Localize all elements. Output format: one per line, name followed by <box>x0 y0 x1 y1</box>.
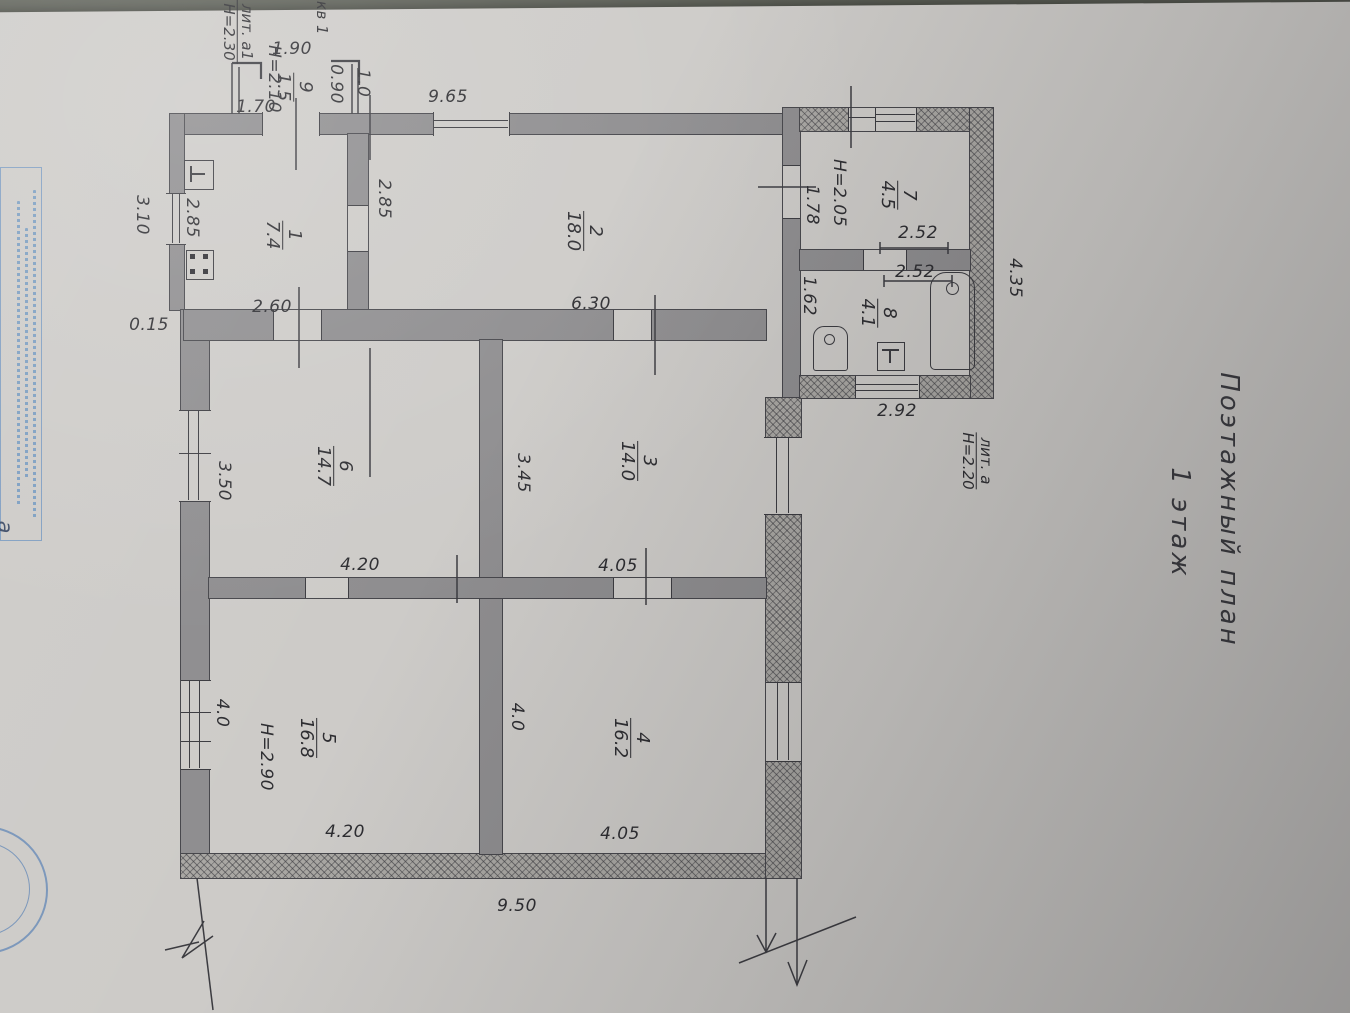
dim-room5-height: Н=2.90 <box>256 723 276 791</box>
dim-top-wall: 9.65 <box>428 87 468 107</box>
dim-annex-width: 4.35 <box>1005 258 1025 298</box>
stamp-text-row <box>17 201 20 506</box>
room-7-number: 7 <box>898 181 920 210</box>
photographed-floor-plan: 9.65 1.90 1.70 0.15 2.60 6.30 4.20 4.05 … <box>0 0 1350 1013</box>
page-title: Поэтажный план <box>1214 372 1244 647</box>
room-3-number: 3 <box>638 441 660 481</box>
dim-porch-c: 0.90 <box>326 64 346 104</box>
room-7-label: 7 4.5 <box>877 181 919 210</box>
room-9-label: 9 1.5 <box>273 73 315 102</box>
apartment-label: кв 1 <box>313 1 331 35</box>
litera-a1-name: лит. а1 <box>237 0 255 64</box>
stamp-text-row <box>25 228 28 481</box>
dim-room1-width: 2.85 <box>182 198 202 238</box>
litera-a-label: лит. а Н=2.20 <box>958 432 994 489</box>
room-2-label: 2 18.0 <box>563 211 605 251</box>
dim-porch-d: 1.0 <box>353 69 373 98</box>
room-9-area: 1.5 <box>273 73 294 102</box>
dim-room5-length: 4.20 <box>325 822 365 842</box>
room-1-area: 7.4 <box>262 221 283 250</box>
pen-mark: а <box>0 521 17 534</box>
dim-room7-depth: 1.78 <box>802 185 822 225</box>
room-6-number: 6 <box>334 446 356 486</box>
room-4-number: 4 <box>631 718 653 758</box>
litera-a-name: лит. а <box>976 432 994 489</box>
room-3-area: 14.0 <box>617 441 638 481</box>
room-1-number: 1 <box>283 221 305 250</box>
dim-room8-depth: 1.62 <box>799 276 819 316</box>
dim-room3-width: 3.45 <box>513 453 533 493</box>
dim-room5-width: 4.0 <box>212 699 232 728</box>
room-3-label: 3 14.0 <box>617 441 659 481</box>
room-6-label: 6 14.7 <box>313 446 355 486</box>
litera-a-height: Н=2.20 <box>958 432 975 489</box>
room-5-area: 16.8 <box>296 718 317 758</box>
room-8-number: 8 <box>878 299 900 328</box>
dim-room3-length: 4.05 <box>598 556 638 576</box>
dim-wall-jog: 0.15 <box>129 315 169 335</box>
litera-a1-height: Н=2.30 <box>219 0 236 64</box>
dim-room8-width: 2.52 <box>895 262 935 282</box>
room-8-area: 4.1 <box>857 299 878 328</box>
dim-room6-width: 3.50 <box>214 461 234 501</box>
dim-room4-width: 4.0 <box>507 703 527 732</box>
dim-left-outer: 3.10 <box>132 195 152 235</box>
room-5-label: 5 16.8 <box>296 718 338 758</box>
dim-annex-depth: 2.92 <box>877 401 917 421</box>
room-4-area: 16.2 <box>610 718 631 758</box>
room-2-area: 18.0 <box>563 211 584 251</box>
inventory-stamp <box>0 167 42 541</box>
room-8-label: 8 4.1 <box>857 299 899 328</box>
litera-a1-label: лит. а1 Н=2.30 <box>219 0 255 64</box>
room-6-area: 14.7 <box>313 446 334 486</box>
page-subtitle: 1 этаж <box>1165 467 1195 579</box>
dim-room2-length: 6.30 <box>571 294 611 314</box>
dim-room1-length: 2.60 <box>252 297 292 317</box>
room-1-label: 1 7.4 <box>262 221 304 250</box>
dim-room2-width: 2.85 <box>374 179 394 219</box>
plan-lines <box>0 0 1350 1013</box>
room-4-label: 4 16.2 <box>610 718 652 758</box>
dim-room6-length: 4.20 <box>340 555 380 575</box>
stamp-text-row <box>33 190 36 517</box>
room-5-number: 5 <box>317 718 339 758</box>
dim-room4-length: 4.05 <box>600 824 640 844</box>
room-7-area: 4.5 <box>877 181 898 210</box>
dim-room7-width: 2.52 <box>898 223 938 243</box>
dim-room7-height: Н=2.05 <box>829 159 849 227</box>
dim-bottom-wall: 9.50 <box>497 896 537 916</box>
room-2-number: 2 <box>584 211 606 251</box>
room-9-number: 9 <box>294 73 316 102</box>
